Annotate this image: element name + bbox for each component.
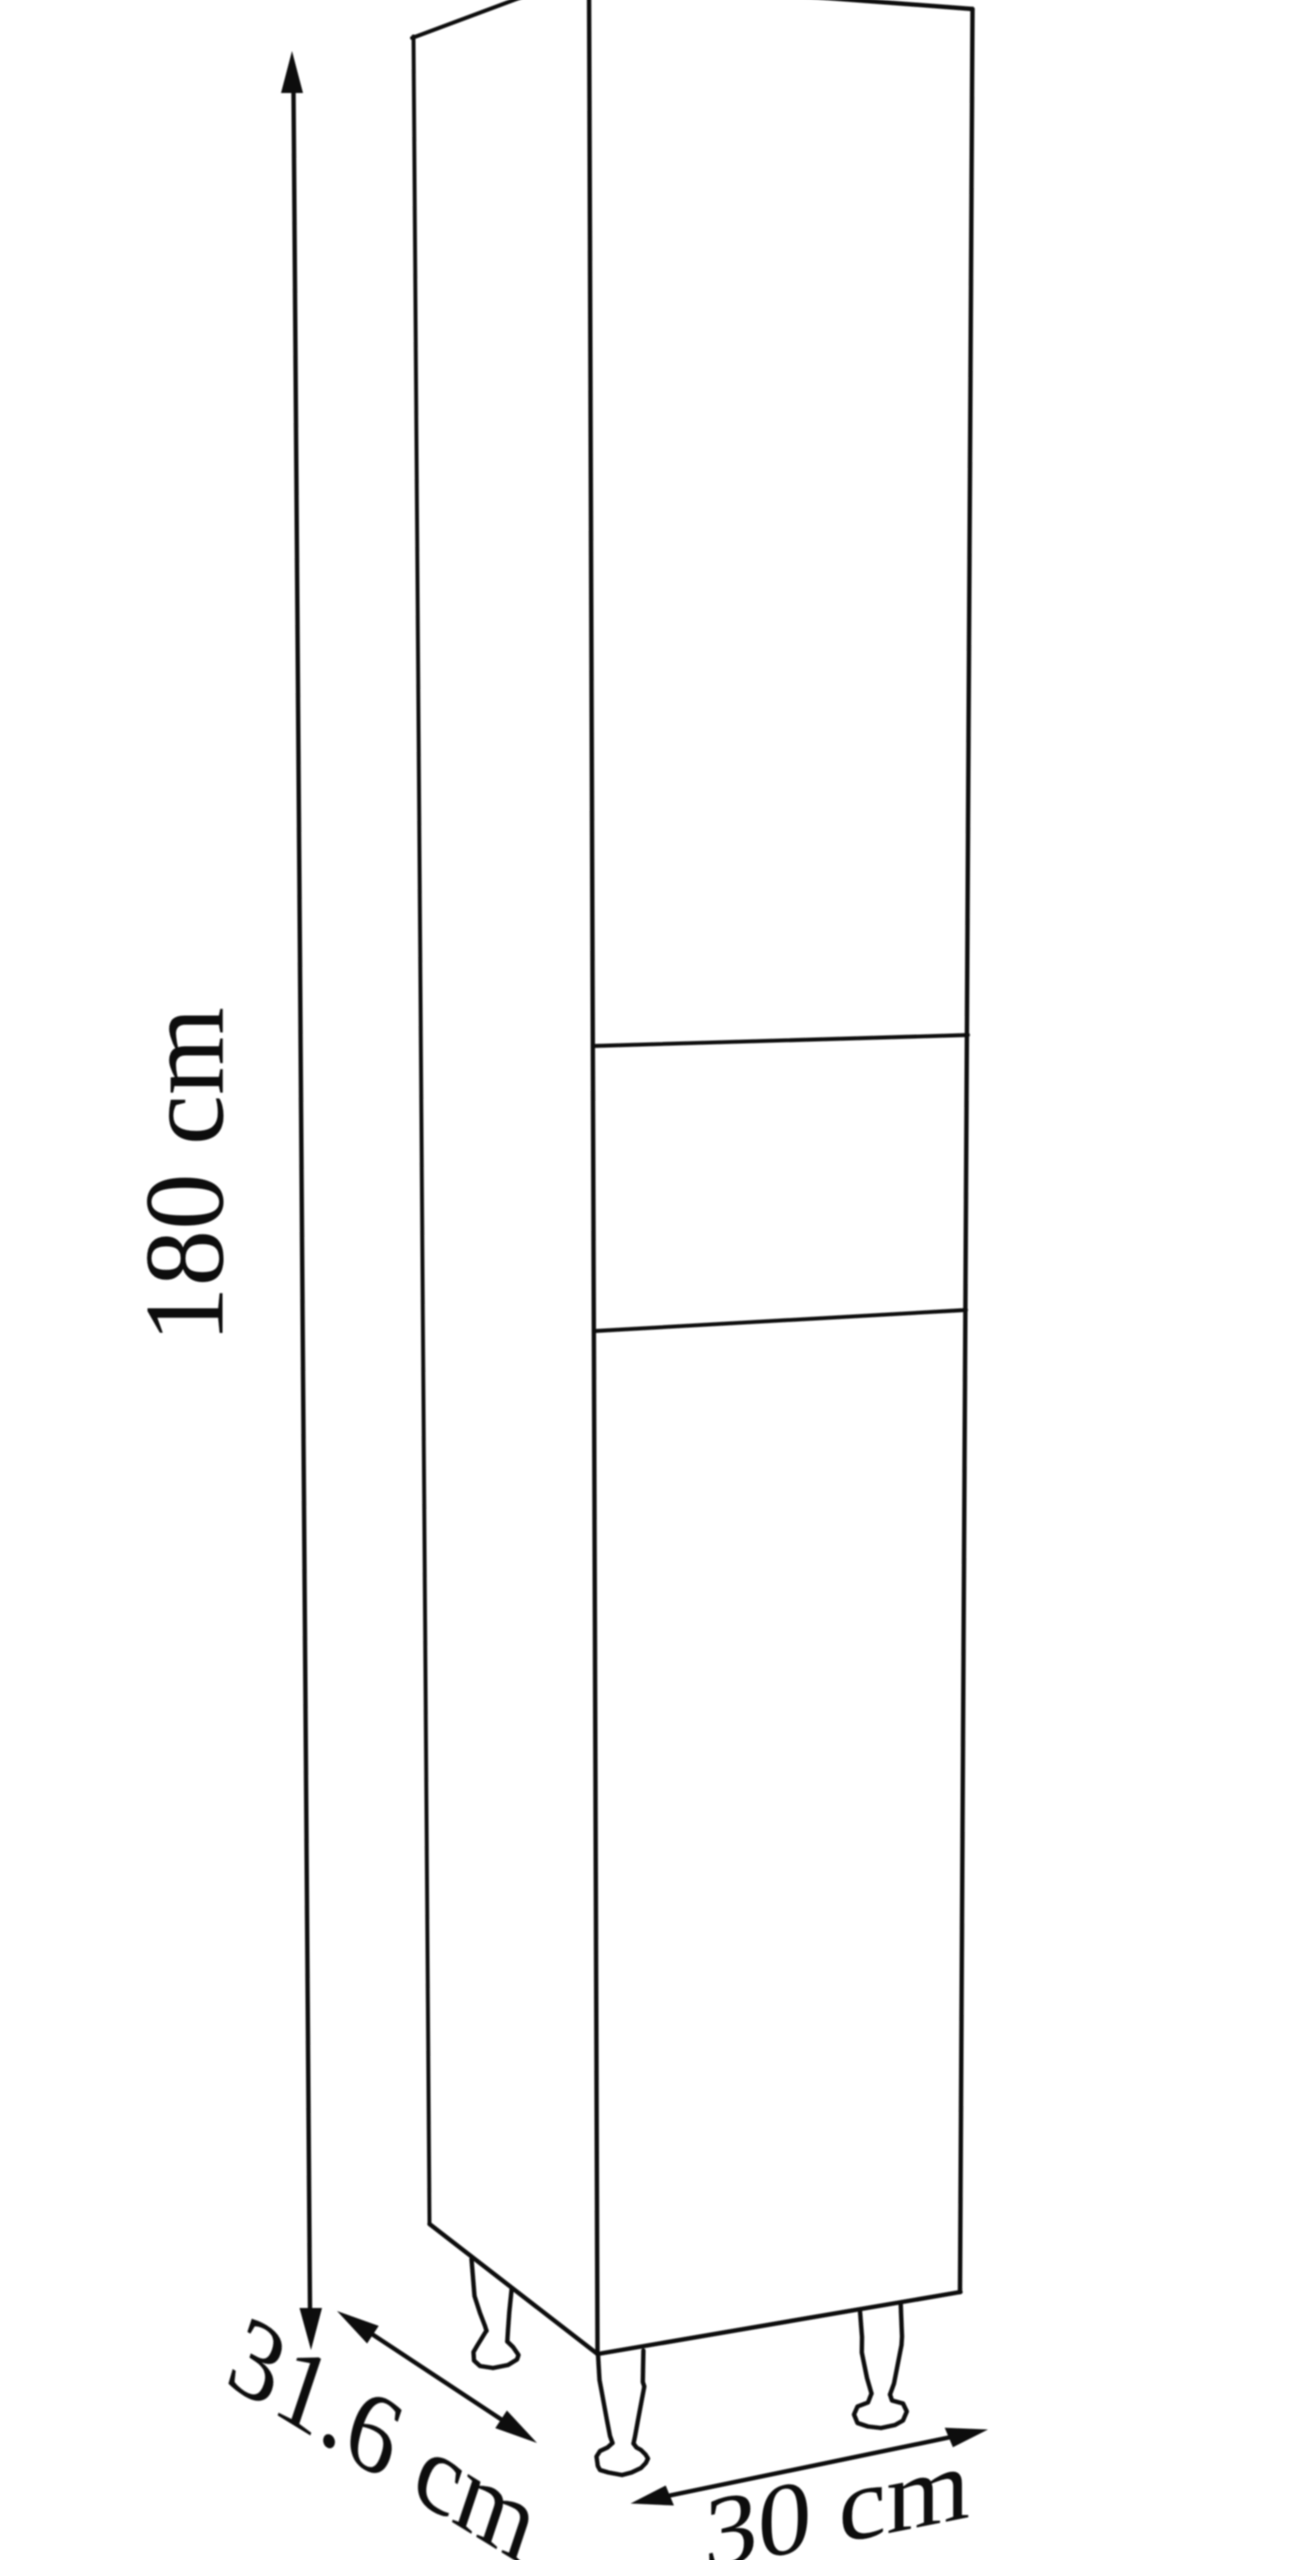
svg-text:30 cm: 30 cm <box>704 2425 970 2560</box>
svg-text:180 cm: 180 cm <box>123 1007 248 1343</box>
